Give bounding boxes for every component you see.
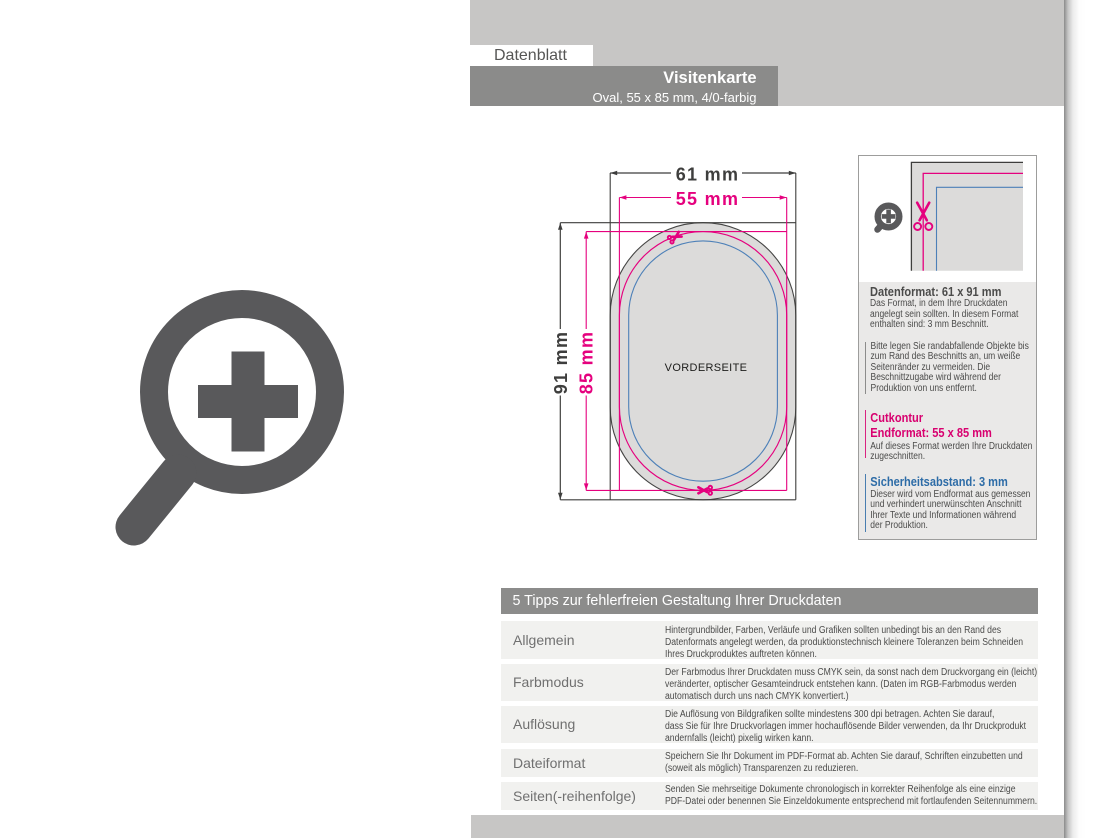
svg-text:91 mm: 91 mm (551, 331, 571, 395)
svg-text:VORDERSEITE: VORDERSEITE (665, 362, 748, 374)
svg-text:61 mm: 61 mm (676, 165, 740, 185)
svg-text:85 mm: 85 mm (577, 331, 597, 395)
svg-text:55 mm: 55 mm (676, 189, 740, 209)
